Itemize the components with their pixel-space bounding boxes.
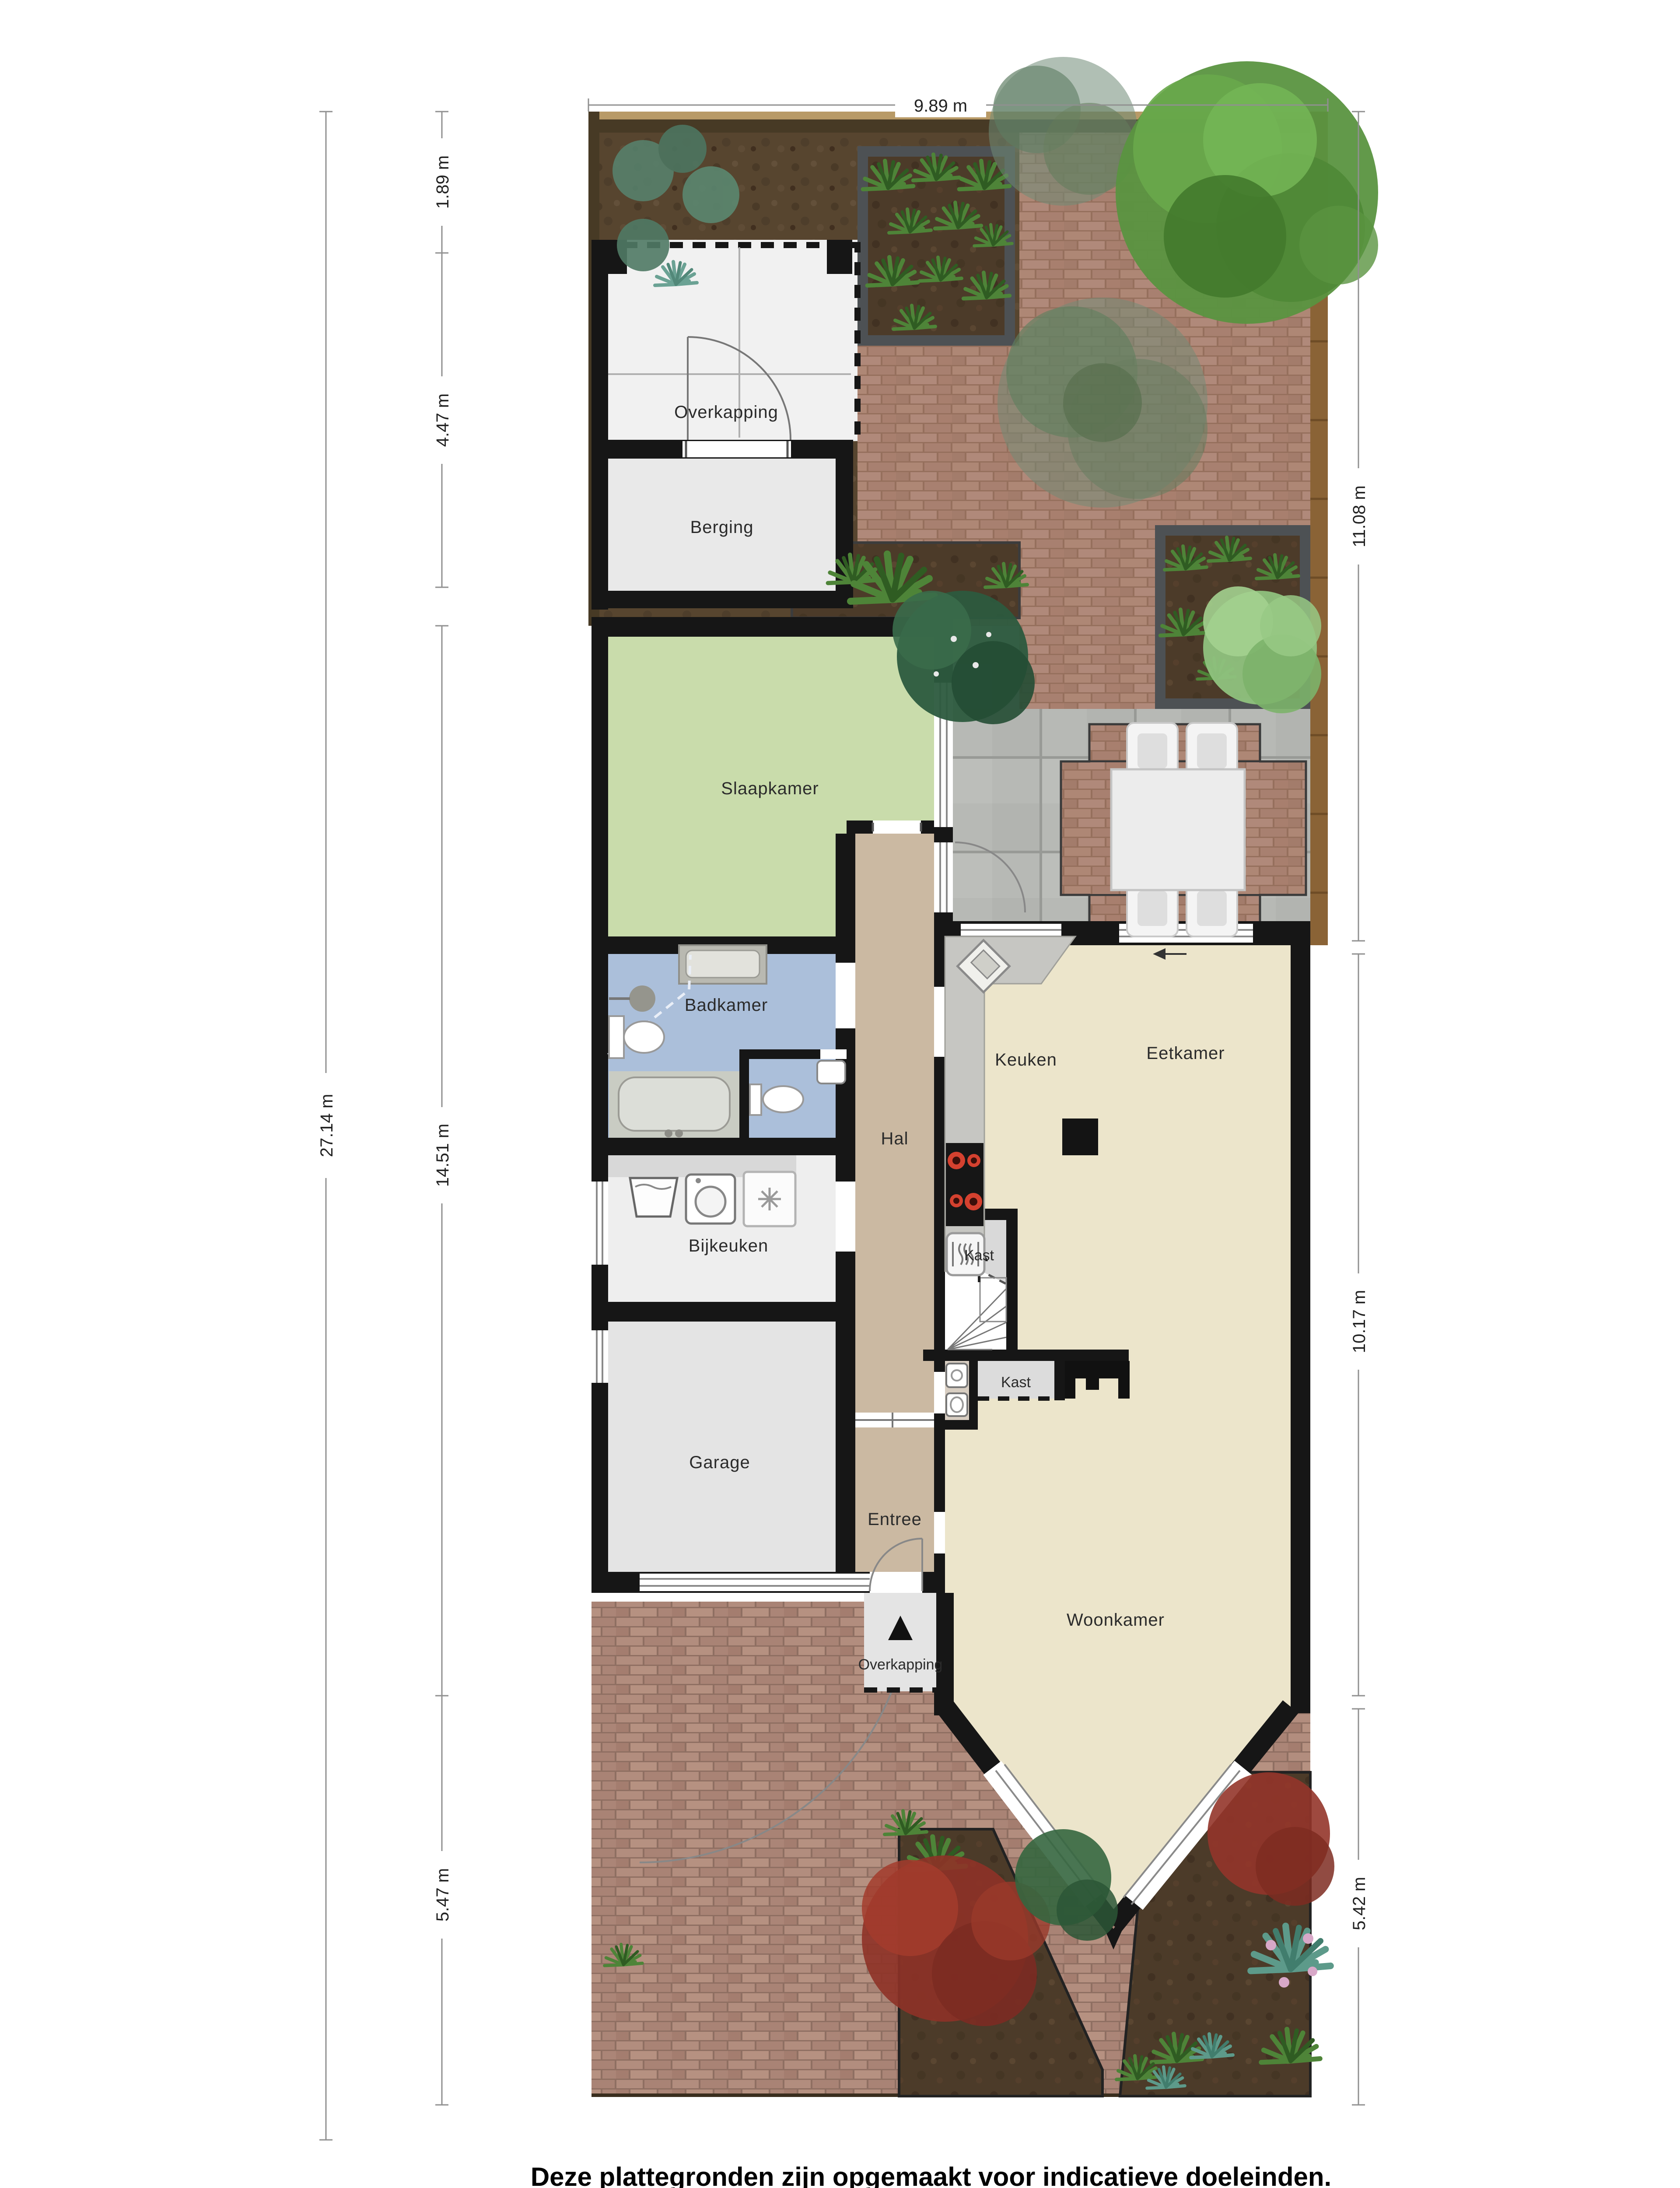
- door-badkamer-hal: [836, 963, 855, 1028]
- floorplan-page: 9.89 m 27.14 m 1.89 m 4.47 m 14.51 m 5.4…: [0, 0, 1680, 2188]
- label-garage: Garage: [689, 1453, 750, 1472]
- door-entree-wc: [934, 1372, 945, 1413]
- label-berging: Berging: [690, 518, 754, 537]
- olive-tree-top: [989, 57, 1137, 206]
- patio-dining-set: [1111, 723, 1245, 936]
- door-slaapkamer-hal: [873, 820, 921, 834]
- dim-left-1: 1.89 m: [430, 138, 454, 226]
- big-tree-top-right: [1116, 61, 1378, 324]
- label-overkapping-top: Overkapping: [674, 403, 778, 422]
- column-block: [1062, 1119, 1098, 1155]
- dim-top: 9.89 m: [895, 92, 986, 117]
- toilet2-icon: [750, 1084, 803, 1115]
- svg-text:11.08 m: 11.08 m: [1350, 485, 1369, 547]
- porch-overkapping: [864, 1593, 936, 1691]
- label-eetkamer: Eetkamer: [1146, 1044, 1225, 1063]
- dryer-icon: [744, 1172, 795, 1226]
- label-badkamer: Badkamer: [685, 996, 768, 1015]
- washing-machine-icon: [686, 1175, 735, 1224]
- label-kast-boven: Kast: [964, 1247, 994, 1264]
- dim-left-outer: 27.14 m: [313, 1073, 338, 1178]
- washbasin-icon: [817, 1061, 845, 1083]
- door-bijkeuken-hal: [836, 1182, 855, 1252]
- svg-text:10.17 m: 10.17 m: [1350, 1290, 1369, 1353]
- label-slaapkamer: Slaapkamer: [721, 779, 819, 798]
- svg-text:9.89 m: 9.89 m: [914, 96, 967, 116]
- fireplace-block: [1065, 1361, 1130, 1399]
- svg-text:27.14 m: 27.14 m: [317, 1094, 336, 1157]
- dim-left-3: 14.51 m: [430, 1107, 454, 1203]
- patio-table: [1111, 769, 1245, 890]
- svg-text:14.51 m: 14.51 m: [433, 1124, 452, 1187]
- shower-head-icon: [629, 985, 655, 1012]
- door-hal-entree: [855, 1413, 934, 1427]
- svg-text:5.47 m: 5.47 m: [433, 1868, 452, 1922]
- room-garage: [608, 1322, 836, 1572]
- label-entree: Entree: [868, 1510, 922, 1529]
- disclaimer: Deze plattegronden zijn opgemaakt voor i…: [531, 2162, 1331, 2188]
- opening-hal-keuken: [934, 987, 945, 1057]
- dim-right-2: 10.17 m: [1346, 1273, 1371, 1370]
- dim-right-3: 5.42 m: [1346, 1860, 1371, 1947]
- door-entree-woonkamer: [934, 1512, 945, 1553]
- window-garage-west: [591, 1330, 608, 1383]
- svg-text:1.89 m: 1.89 m: [433, 155, 452, 209]
- dim-left-4: 5.47 m: [430, 1851, 454, 1939]
- door-inner-toilet: [820, 1049, 847, 1059]
- label-overkapping-porch: Overkapping: [858, 1656, 943, 1673]
- room-hal: [855, 834, 934, 1572]
- label-kast-onder: Kast: [1001, 1374, 1031, 1391]
- svg-text:4.47 m: 4.47 m: [433, 393, 452, 447]
- wc-niche: [945, 1361, 969, 1420]
- label-keuken: Keuken: [995, 1050, 1057, 1069]
- disclaimer-line-1: Deze plattegronden zijn opgemaakt voor i…: [531, 2162, 1331, 2188]
- svg-text:5.42 m: 5.42 m: [1350, 1877, 1369, 1930]
- olive-tree-middle: [997, 298, 1207, 508]
- window-bijkeuken-west: [591, 1182, 608, 1265]
- label-hal: Hal: [881, 1129, 908, 1148]
- laundry-sink-icon: [630, 1178, 677, 1217]
- label-woonkamer: Woonkamer: [1067, 1610, 1165, 1630]
- dim-right-1: 11.08 m: [1346, 468, 1371, 565]
- label-bijkeuken: Bijkeuken: [689, 1236, 768, 1255]
- dim-left-2: 4.47 m: [430, 376, 454, 464]
- bathtub-icon: [609, 1071, 739, 1138]
- floorplan-canvas: 9.89 m 27.14 m 1.89 m 4.47 m 14.51 m 5.4…: [0, 0, 1680, 2188]
- stove-icon: [946, 1143, 983, 1226]
